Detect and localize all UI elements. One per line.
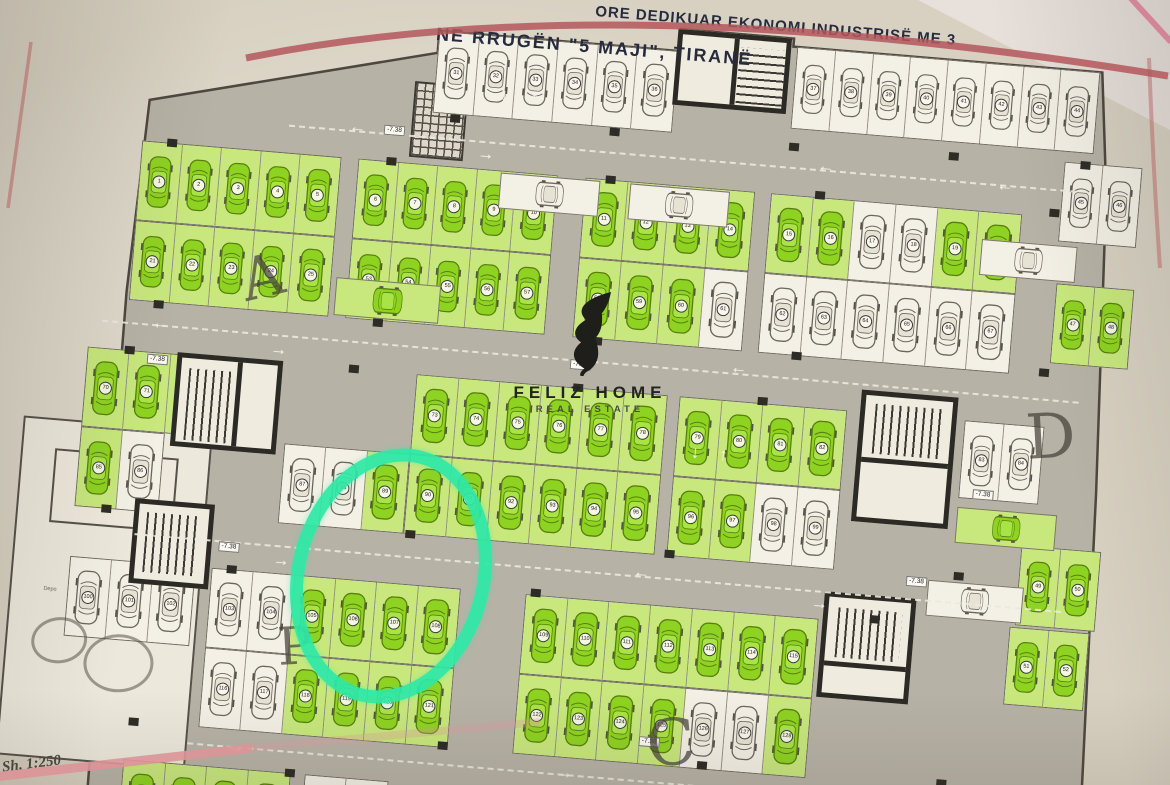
column-marker: [791, 352, 802, 361]
elevation-label: -7.38: [906, 576, 928, 588]
column-marker: [1039, 368, 1050, 377]
parking-stall: 8: [432, 166, 478, 247]
lane-arrow-icon: ↑: [718, 446, 728, 464]
column-marker: [386, 157, 397, 166]
parking-stall: 129: [118, 760, 166, 785]
parking-stall: 66: [925, 288, 973, 369]
lane-arrow-icon: ↓: [690, 443, 700, 461]
parking-stall: 81: [757, 404, 805, 485]
parking-stall: 97: [709, 481, 757, 562]
stairs-icon: [183, 368, 233, 443]
parking-stall: 56: [465, 249, 511, 330]
parking-stall: 109: [520, 595, 568, 676]
parking-stall: 127: [721, 692, 769, 773]
parking-stall: 7: [392, 163, 438, 244]
parking-row: 96 97 98 99: [666, 476, 840, 570]
parking-stall: 131: [201, 767, 249, 785]
parking-stall: 110: [562, 599, 610, 680]
column-marker: [609, 128, 620, 137]
car-icon: [306, 780, 339, 785]
column-marker: [101, 504, 112, 513]
elevation-label: -7.38: [147, 354, 169, 366]
parking-stall: 128: [763, 696, 811, 777]
parking-stall: 80: [715, 401, 763, 482]
parking-stall: 99: [792, 488, 840, 569]
parking-stall: 70: [82, 348, 130, 429]
lane-arrow-icon: ←: [632, 563, 650, 581]
parking-stall: 4: [255, 151, 301, 232]
parking-row: 51 52: [1003, 627, 1089, 711]
car-icon: [166, 768, 199, 785]
parking-stall: 46: [1097, 166, 1141, 247]
parking-stall: 134: [340, 779, 387, 785]
column-marker: [285, 769, 296, 778]
depot-label: Depo: [43, 586, 57, 593]
lane-arrow-icon: ↑: [530, 89, 540, 107]
lane-arrow-icon: ←: [996, 176, 1014, 194]
parking-stall: 67: [966, 291, 1014, 372]
watermark-subtitle: REAL ESTATE: [505, 404, 675, 415]
parking-stall: 45: [1059, 163, 1103, 244]
stairs-icon: [872, 404, 944, 460]
parking-stall: 18: [890, 205, 938, 286]
parking-stall: 47: [1051, 285, 1095, 366]
lane-arrow-icon: →: [270, 340, 288, 358]
parking-stall: 63: [800, 278, 848, 359]
lane-arrow-icon: ←: [817, 157, 835, 175]
elevation-label: -7.38: [384, 125, 406, 137]
stair-core: [128, 498, 215, 589]
lane-arrow-icon: →: [555, 763, 573, 781]
parking-stall: 114: [728, 613, 776, 694]
column-marker: [664, 550, 675, 559]
parking-stall: 112: [645, 606, 693, 687]
parking-stall: 132: [242, 771, 290, 785]
parking-stall: 65: [883, 284, 931, 365]
stairs-icon: [834, 607, 902, 662]
car-icon: [249, 775, 283, 785]
column-marker: [869, 615, 880, 624]
zone-letter: C: [643, 705, 698, 783]
parking-stall: 17: [848, 201, 896, 282]
lane-arrow-icon: →: [890, 388, 908, 406]
elevation-label: -7.38: [972, 489, 994, 501]
stair-core: [816, 591, 917, 704]
lane-arrow-icon: ←: [730, 358, 748, 376]
parking-stall: 61: [699, 269, 747, 350]
column-marker: [697, 761, 708, 770]
parking-stall: 74: [453, 379, 501, 460]
parking-stall: 51: [1004, 628, 1049, 707]
parking-row: 49 50: [1015, 545, 1101, 631]
column-marker: [373, 318, 384, 327]
column-marker: [437, 741, 448, 750]
column-marker: [226, 565, 237, 574]
parking-stall: 82: [798, 408, 846, 489]
lane-arrow-icon: ←: [348, 118, 366, 136]
column-marker: [128, 717, 139, 726]
parking-stall: 103: [206, 569, 254, 650]
car-icon: [125, 765, 158, 785]
column-marker: [450, 114, 461, 123]
parking-stall: 22: [169, 225, 215, 306]
watermark-name: FELIZ HOME: [505, 383, 675, 403]
column-marker: [789, 143, 800, 152]
parking-stall: 94: [570, 469, 618, 550]
column-marker: [167, 139, 178, 148]
column-marker: [605, 175, 616, 184]
parking-stall: 73: [411, 375, 459, 456]
parking-stall: 92: [487, 462, 535, 543]
parking-stall: 122: [513, 675, 561, 756]
parking-stall: 133: [299, 775, 346, 785]
parking-stall: 124: [596, 682, 644, 763]
lane-arrow-icon: ←: [151, 314, 169, 332]
parking-stall: 116: [199, 649, 247, 730]
column-marker: [1080, 161, 1091, 170]
parking-stall: 25: [288, 234, 334, 315]
column-marker: [815, 191, 826, 200]
parking-stall: 79: [674, 397, 722, 478]
parking-stall: 115: [769, 616, 817, 697]
parking-stall: 52: [1043, 631, 1088, 710]
elevation-label: -7.38: [218, 541, 240, 553]
zone-letter: D: [1024, 398, 1078, 474]
parking-stall: 1: [137, 142, 183, 223]
lane-arrow-icon: →: [272, 551, 290, 569]
parking-stall: 19: [931, 208, 979, 289]
column-marker: [124, 346, 135, 355]
lane-arrow-icon: ←: [144, 524, 162, 542]
column-marker: [948, 152, 959, 161]
lane-arrow-icon: →: [810, 594, 828, 612]
column-marker: [1049, 209, 1060, 218]
parking-stall: 16: [807, 198, 855, 279]
lane-arrow-icon: →: [477, 145, 495, 163]
parking-stall: 85: [76, 427, 123, 508]
column-marker: [530, 589, 541, 598]
floor-plan-photo: Dhome teknike Depo Depo 31 32 33 34: [0, 0, 1170, 785]
parking-stall: 130: [159, 764, 207, 785]
parking-stall: 98: [750, 484, 798, 565]
stair-core: [170, 352, 283, 455]
column-marker: [936, 779, 947, 785]
flame-logo-icon: [563, 292, 617, 376]
parking-stall: 96: [667, 477, 715, 558]
column-marker: [153, 300, 164, 309]
parking-stall: 2: [176, 145, 222, 226]
parking-stall: 111: [603, 602, 651, 683]
parking-stall: 62: [759, 274, 807, 355]
sheet-title: ORE DEDIKUAR EKONOMI INDUSTRISË ME 3 NE …: [0, 0, 1170, 90]
stairs-icon: [142, 512, 201, 576]
parking-stall: 5: [294, 155, 340, 236]
parking-stall: 113: [686, 609, 734, 690]
parking-stall: 15: [765, 194, 813, 275]
title-line-2: NE RRUGËN "5 MAJI", TIRANË: [435, 24, 753, 70]
parking-row: 47 48: [1050, 283, 1134, 369]
parking-row: 45 46: [1058, 162, 1142, 248]
car-icon: [207, 771, 240, 785]
parking-stall: 3: [216, 148, 262, 229]
column-marker: [757, 397, 768, 406]
parking-stall: 6: [353, 160, 399, 241]
parking-stall: 64: [842, 281, 890, 362]
parking-stall: 50: [1055, 550, 1100, 631]
lane-arrow-icon: →: [226, 738, 244, 756]
parking-stall: 93: [529, 465, 577, 546]
parking-stall: 123: [555, 678, 603, 759]
column-marker: [953, 572, 964, 581]
parking-stall: 21: [130, 221, 176, 302]
column-marker: [349, 365, 360, 374]
watermark: FELIZ HOME REAL ESTATE: [505, 292, 675, 415]
parking-stall: 95: [612, 472, 660, 553]
parking-stall: 48: [1089, 288, 1133, 369]
stair-core: [851, 390, 959, 530]
